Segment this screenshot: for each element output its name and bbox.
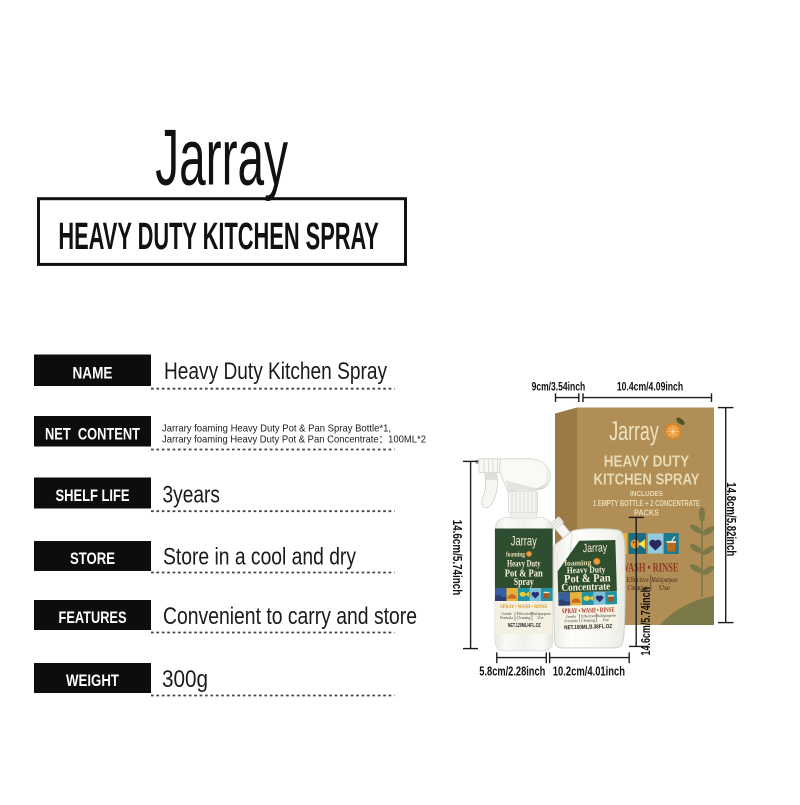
svg-text:Jarray: Jarray [583,540,608,555]
svg-text:Multipurpose: Multipurpose [652,576,678,584]
svg-text:KITCHEN SPRAY: KITCHEN SPRAY [594,472,701,489]
svg-text:Cleaning: Cleaning [517,616,531,620]
svg-text:9cm/3.54inch: 9cm/3.54inch [532,381,586,393]
svg-text:SPRAY • WASH • RINSE: SPRAY • WASH • RINSE [500,604,547,610]
svg-text:STORE: STORE [70,549,115,568]
svg-text:10.2cm/4.01inch: 10.2cm/4.01inch [553,663,625,678]
svg-text:PACKS: PACKS [634,509,659,518]
svg-text:INCLUDES: INCLUDES [630,489,663,498]
svg-text:Convenient to carry and store: Convenient to carry and store [163,603,417,630]
svg-text:HEAVY DUTY KITCHEN SPRAY: HEAVY DUTY KITCHEN SPRAY [58,216,379,258]
svg-text:HEAVY DUTY: HEAVY DUTY [604,454,690,471]
svg-text:Spray: Spray [514,576,534,588]
svg-text:5.8cm/2.28inch: 5.8cm/2.28inch [479,663,545,678]
svg-text:SHELF LIFE: SHELF LIFE [56,486,130,505]
svg-text:Use: Use [538,616,544,620]
svg-text:300g: 300g [162,666,208,693]
svg-text:14.8cm/5.82inch: 14.8cm/5.82inch [724,482,738,556]
svg-text:Use: Use [659,584,670,592]
svg-text:Store in a cool and dry: Store in a cool and dry [163,544,356,571]
svg-text:Jarray: Jarray [511,533,537,549]
svg-text:NET CONTENT: NET CONTENT [45,425,140,444]
svg-text:Jarray: Jarray [609,416,659,446]
svg-text:10.4cm/4.09inch: 10.4cm/4.09inch [617,381,683,393]
svg-text:Formula: Formula [500,616,513,620]
svg-text:14.6cm/5.74inch: 14.6cm/5.74inch [639,587,653,656]
svg-text:Heavy Duty Kitchen Spray: Heavy Duty Kitchen Spray [164,358,387,385]
svg-text:NET.120ML/4FL.OZ: NET.120ML/4FL.OZ [508,623,541,629]
svg-text:Jarrary foaming Heavy Duty Pot: Jarrary foaming Heavy Duty Pot & Pan Con… [162,434,426,446]
svg-text:WEIGHT: WEIGHT [66,671,119,690]
svg-text:Cleaning: Cleaning [581,618,595,622]
svg-text:Use: Use [603,618,609,622]
svg-text:NAME: NAME [73,364,113,383]
svg-text:14.6cm/5.74inch: 14.6cm/5.74inch [450,520,464,596]
svg-text:Formula: Formula [564,619,578,623]
svg-text:Jarray: Jarray [155,113,288,202]
svg-text:1 EMPTY BOTTLE + 2 CONCENTRATE: 1 EMPTY BOTTLE + 2 CONCENTRATE [593,499,700,508]
svg-text:FEATURES: FEATURES [59,608,127,627]
svg-text:3years: 3years [163,482,221,509]
svg-text:WASH • RINSE: WASH • RINSE [621,560,679,575]
svg-text:Effective: Effective [627,576,649,584]
